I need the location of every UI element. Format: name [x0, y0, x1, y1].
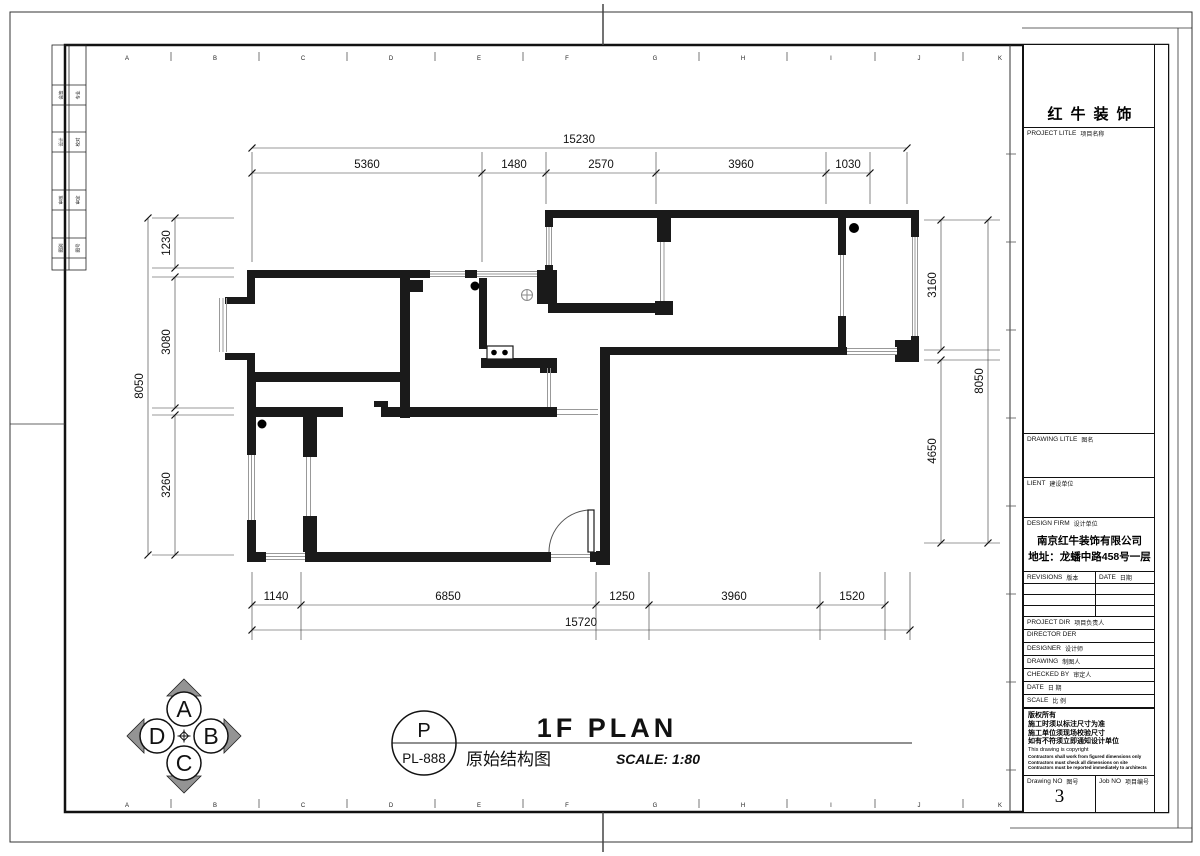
svg-text:D: D — [389, 803, 394, 809]
floor-drain-icon — [522, 290, 533, 301]
scale-text: SCALE: 1:80 — [616, 751, 700, 767]
svg-text:校对: 校对 — [75, 137, 82, 146]
svg-text:1140: 1140 — [264, 591, 289, 603]
dim-left: 8050 1230 3080 3260 — [134, 215, 234, 559]
date-row: DATE日 期 — [1024, 681, 1155, 694]
column-dots — [258, 223, 860, 429]
svg-text:B: B — [213, 56, 217, 62]
svg-text:J: J — [918, 56, 921, 62]
svg-text:3160: 3160 — [927, 272, 939, 298]
column-dot-top-right — [849, 223, 859, 233]
design-firm-row: DESIGN FIRM设计单位 南京红牛装饰有限公司 地址：龙蟠中路458号一层 — [1024, 517, 1155, 571]
project-title-value — [1024, 137, 1155, 433]
svg-text:6850: 6850 — [435, 591, 461, 603]
svg-text:15230: 15230 — [563, 134, 595, 146]
dim-top: 15230 5360 1480 2570 3960 1030 — [249, 134, 911, 262]
drawing-row: DRAWING制图人 — [1024, 655, 1155, 668]
stove-symbol — [487, 346, 513, 359]
svg-text:1250: 1250 — [609, 591, 635, 603]
svg-text:3960: 3960 — [728, 159, 754, 171]
revision-row — [1024, 605, 1155, 616]
drawing-sheet: 会签 专业 设计 校对 审核 审定 图别 图号 A B C D E F G H … — [0, 0, 1200, 856]
svg-text:A: A — [125, 803, 129, 809]
revision-row — [1024, 594, 1155, 605]
svg-text:J: J — [918, 803, 921, 809]
signature-strip-labels: 会签 专业 设计 校对 审核 审定 图别 图号 — [58, 90, 82, 252]
svg-text:E: E — [477, 56, 481, 62]
drawing-no-row: Drawing NO图号 3 Job NO项目编号 — [1024, 775, 1155, 812]
compass-letter-top: A — [176, 696, 192, 722]
cad-canvas: 会签 专业 设计 校对 审核 审定 图别 图号 A B C D E F G H … — [0, 0, 1200, 856]
title-block: 红牛装饰 PROJECT LITLE项目名称 DRAWING LITLE图名 L… — [1022, 45, 1168, 812]
scale-row: SCALE比 例 — [1024, 694, 1155, 707]
svg-text:A: A — [125, 56, 129, 62]
grid-letters-bottom: A B C D E F G H I J K — [125, 799, 1002, 809]
svg-text:C: C — [301, 803, 306, 809]
designer-row: DESIGNER设计师 — [1024, 642, 1155, 655]
svg-text:4650: 4650 — [927, 438, 939, 464]
svg-text:3260: 3260 — [161, 472, 173, 498]
drawing-title-bar: P PL-888 1F PLAN 原始结构图 SCALE: 1:80 — [392, 711, 912, 775]
column-dot-kitchen — [471, 282, 480, 291]
svg-text:图号: 图号 — [76, 243, 82, 252]
svg-text:8050: 8050 — [974, 368, 986, 394]
door-leaf — [588, 510, 594, 552]
stamp-code: PL-888 — [402, 751, 446, 766]
project-dir-row: PROJECT DIR项目负责人 — [1024, 616, 1155, 629]
svg-text:I: I — [830, 803, 832, 809]
revisions-header: REVISIONS版本 DATE日期 — [1024, 571, 1155, 583]
svg-text:审定: 审定 — [75, 195, 82, 204]
svg-text:1030: 1030 — [835, 159, 861, 171]
svg-text:会签: 会签 — [58, 90, 65, 99]
compass-letter-bottom: C — [176, 750, 193, 776]
dim-bottom: 1140 6850 1250 3960 1520 15720 — [249, 572, 914, 640]
title-block-inner: 红牛装饰 PROJECT LITLE项目名称 DRAWING LITLE图名 L… — [1024, 45, 1155, 812]
dim-right: 3160 4650 8050 — [924, 217, 1000, 547]
svg-text:F: F — [565, 803, 569, 809]
svg-text:3960: 3960 — [721, 591, 747, 603]
svg-text:H: H — [741, 56, 745, 62]
svg-text:B: B — [213, 803, 217, 809]
svg-text:K: K — [998, 803, 1002, 809]
svg-text:设计: 设计 — [58, 137, 65, 146]
svg-text:D: D — [389, 56, 394, 62]
svg-text:5360: 5360 — [354, 159, 380, 171]
grid-letters-top: A B C D E F G H I J K — [125, 52, 1002, 62]
drawing-title-row: DRAWING LITLE图名 — [1024, 433, 1155, 477]
svg-text:3080: 3080 — [161, 329, 173, 355]
compass-letter-right: B — [203, 723, 218, 749]
svg-text:K: K — [998, 56, 1002, 62]
director-row: DIRECTOR DER — [1024, 629, 1155, 642]
firm-address: 地址：龙蟠中路458号一层 — [1024, 549, 1155, 565]
svg-text:1520: 1520 — [839, 591, 865, 603]
logo-area: 红牛装饰 — [1024, 45, 1155, 127]
svg-text:E: E — [477, 803, 481, 809]
compass-letter-left: D — [149, 723, 166, 749]
svg-text:I: I — [830, 56, 832, 62]
svg-text:2570: 2570 — [588, 159, 614, 171]
signature-strip — [52, 45, 86, 270]
firm-name: 南京红牛装饰有限公司 — [1024, 533, 1155, 549]
column-dot-bottom-left — [258, 420, 267, 429]
revision-row — [1024, 583, 1155, 594]
drawing-number: 3 — [1024, 787, 1095, 808]
client-row: LIENT建设单位 — [1024, 477, 1155, 517]
svg-text:G: G — [653, 56, 658, 62]
svg-text:8050: 8050 — [134, 373, 146, 399]
grid-ticks-right — [1006, 154, 1016, 770]
plan-title: 1F PLAN — [537, 713, 678, 743]
svg-text:G: G — [653, 803, 658, 809]
plan-subtitle: 原始结构图 — [466, 750, 551, 769]
company-name: 红牛装饰 — [1039, 103, 1139, 124]
svg-text:F: F — [565, 56, 569, 62]
floor-plan-walls — [225, 210, 919, 565]
svg-text:图别: 图别 — [58, 243, 65, 252]
svg-text:1230: 1230 — [161, 230, 173, 256]
svg-text:审核: 审核 — [58, 195, 65, 204]
svg-text:H: H — [741, 803, 745, 809]
svg-text:15720: 15720 — [565, 617, 597, 629]
svg-text:专业: 专业 — [75, 90, 82, 99]
stamp-letter: P — [417, 720, 430, 742]
project-title-row: PROJECT LITLE项目名称 — [1024, 127, 1155, 137]
copyright-block: 版权所有 施工时须以标注尺寸为准 施工单位须现场校验尺寸 如有不符须立即通知设计… — [1024, 707, 1155, 775]
svg-text:1480: 1480 — [501, 159, 527, 171]
compass: A B C D — [127, 679, 241, 793]
checked-by-row: CHECKED BY审定人 — [1024, 668, 1155, 681]
entry-door — [549, 510, 594, 552]
svg-text:C: C — [301, 56, 306, 62]
